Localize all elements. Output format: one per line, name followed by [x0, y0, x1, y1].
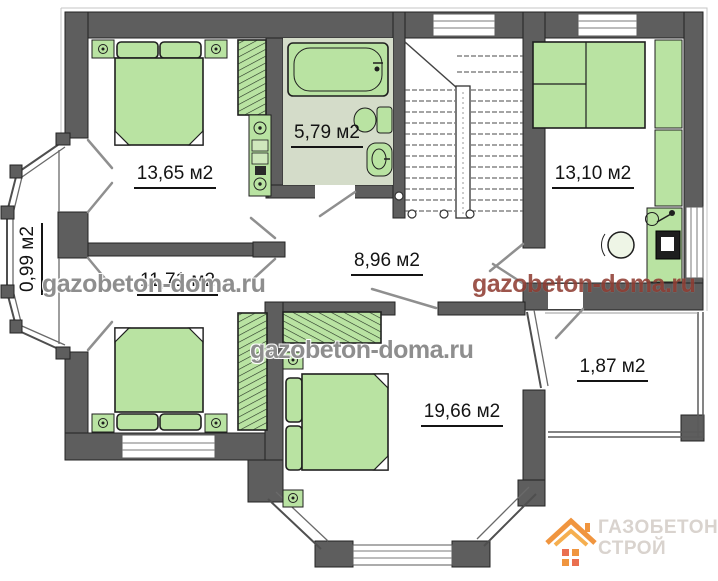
- room-label-room-right: 13,10 м2: [543, 163, 643, 189]
- wall-bay-post-left: [248, 460, 283, 502]
- logo-text-line2: СТРОЙ: [598, 538, 666, 560]
- stair-treads-left: [405, 90, 455, 211]
- wardrobe: [238, 313, 267, 430]
- pillow: [160, 42, 201, 58]
- shelf-unit: [655, 130, 682, 206]
- wall-stub-hall: [253, 242, 285, 257]
- window-right-wall: [686, 207, 703, 278]
- door-leaf-stairs: [490, 244, 523, 271]
- pillow: [286, 378, 302, 422]
- bedroom-bottom: [283, 289, 436, 507]
- watermark-center: gazobeton-doma.ru: [250, 336, 473, 365]
- room-label-bathroom: 5,79 м2: [282, 122, 372, 148]
- stair-treads-right: [471, 90, 523, 211]
- room-label-hallway: 8,96 м2: [342, 250, 432, 276]
- room-label-bay-window-left: 0,99 м2: [17, 214, 43, 304]
- floor-plan-canvas: 13,65 м2 5,79 м2 13,10 м2 0,99 м2 11,71 …: [0, 0, 718, 581]
- wall-left-lower: [65, 352, 88, 436]
- computer-icon: [656, 231, 680, 259]
- wall-between-left-bedrooms: [65, 243, 255, 256]
- wall-hall-south-b: [438, 302, 525, 315]
- bedroom-mid-left: [92, 313, 267, 432]
- wall-bay-center-post: [58, 212, 88, 258]
- double-bed: [302, 374, 388, 470]
- window-top-stairs: [433, 14, 495, 36]
- staircase: [395, 42, 523, 271]
- corner-sofa: [533, 42, 645, 128]
- bathtub: [288, 43, 388, 96]
- pillow: [117, 42, 158, 58]
- logo-house-icon: [547, 521, 595, 566]
- wall-right-lower: [523, 390, 545, 486]
- window-bottom-left-bedroom: [122, 435, 215, 458]
- pillow: [286, 426, 302, 470]
- wardrobe: [238, 40, 266, 115]
- watermark-left: gazobeton-doma.ru: [42, 270, 265, 299]
- wall-left-upper: [65, 12, 88, 138]
- pillow: [160, 414, 201, 430]
- double-bed: [115, 58, 203, 145]
- wall-bay-post-right: [518, 480, 545, 506]
- room-label-bedroom-bottom: 19,66 м2: [412, 401, 512, 427]
- logo-text-line1: ГАЗОБЕТОН: [598, 517, 718, 539]
- utility-shaft: [249, 115, 271, 196]
- wall-bay-post-bottom-left: [315, 541, 353, 567]
- room-label-balcony-right: 1,87 м2: [570, 356, 655, 382]
- double-bed: [115, 328, 203, 412]
- pillow: [117, 414, 158, 430]
- wall-stair-west: [393, 12, 405, 218]
- shelf-unit: [655, 40, 682, 128]
- window-top-right-room: [578, 14, 637, 36]
- watermark-right: gazobeton-doma.ru: [472, 270, 695, 299]
- desk-chair: [601, 232, 634, 258]
- room-label-bedroom-top-left: 13,65 м2: [120, 163, 230, 189]
- window-bottom-bay: [353, 545, 452, 565]
